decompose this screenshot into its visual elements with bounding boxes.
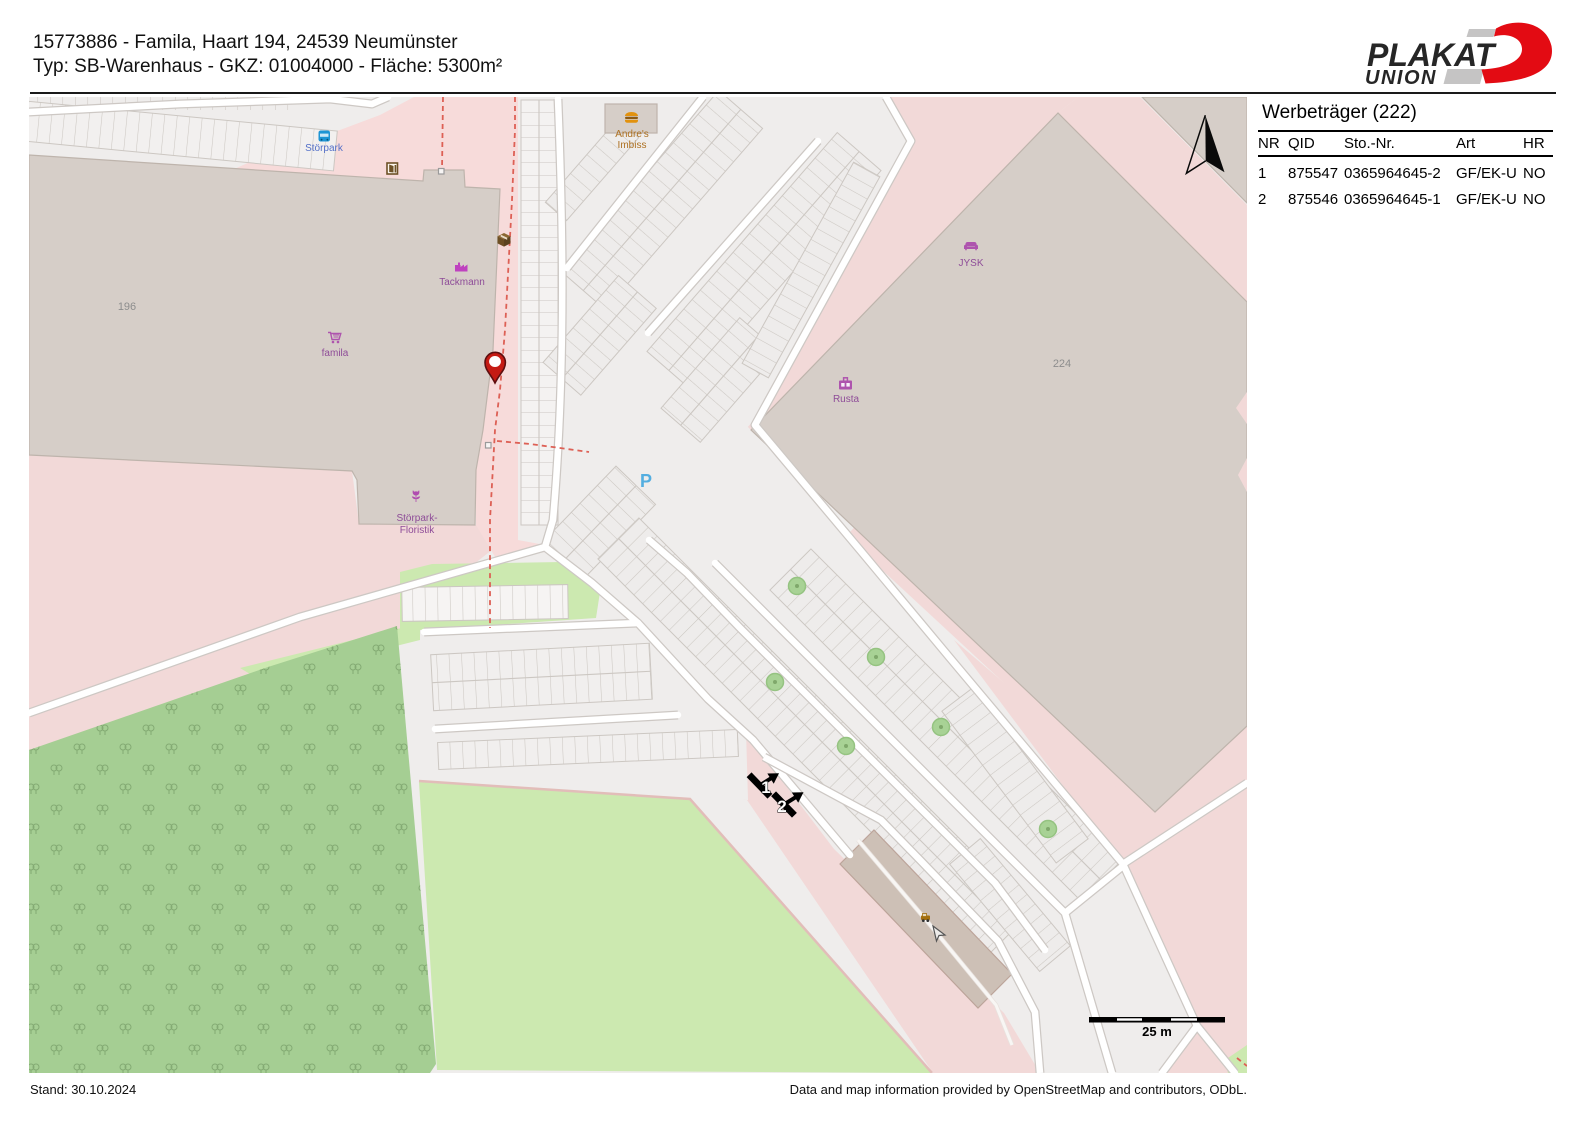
svg-text:P: P <box>640 471 652 491</box>
svg-text:famila: famila <box>322 348 349 359</box>
svg-text:Rusta: Rusta <box>833 394 860 405</box>
svg-text:Imbiss: Imbiss <box>618 140 647 151</box>
svg-text:UNION: UNION <box>1365 67 1437 89</box>
svg-text:196: 196 <box>118 301 136 313</box>
svg-text:224: 224 <box>1053 358 1071 370</box>
svg-text:Floristik: Floristik <box>400 525 435 536</box>
svg-text:25 m: 25 m <box>1142 1024 1172 1039</box>
svg-text:2: 2 <box>777 797 786 816</box>
svg-text:Störpark-: Störpark- <box>396 513 437 524</box>
svg-text:Tackmann: Tackmann <box>439 277 485 288</box>
svg-text:Störpark: Störpark <box>305 143 344 154</box>
svg-text:Andre's: Andre's <box>615 129 649 140</box>
svg-text:JYSK: JYSK <box>958 258 983 269</box>
svg-text:1: 1 <box>761 778 770 797</box>
